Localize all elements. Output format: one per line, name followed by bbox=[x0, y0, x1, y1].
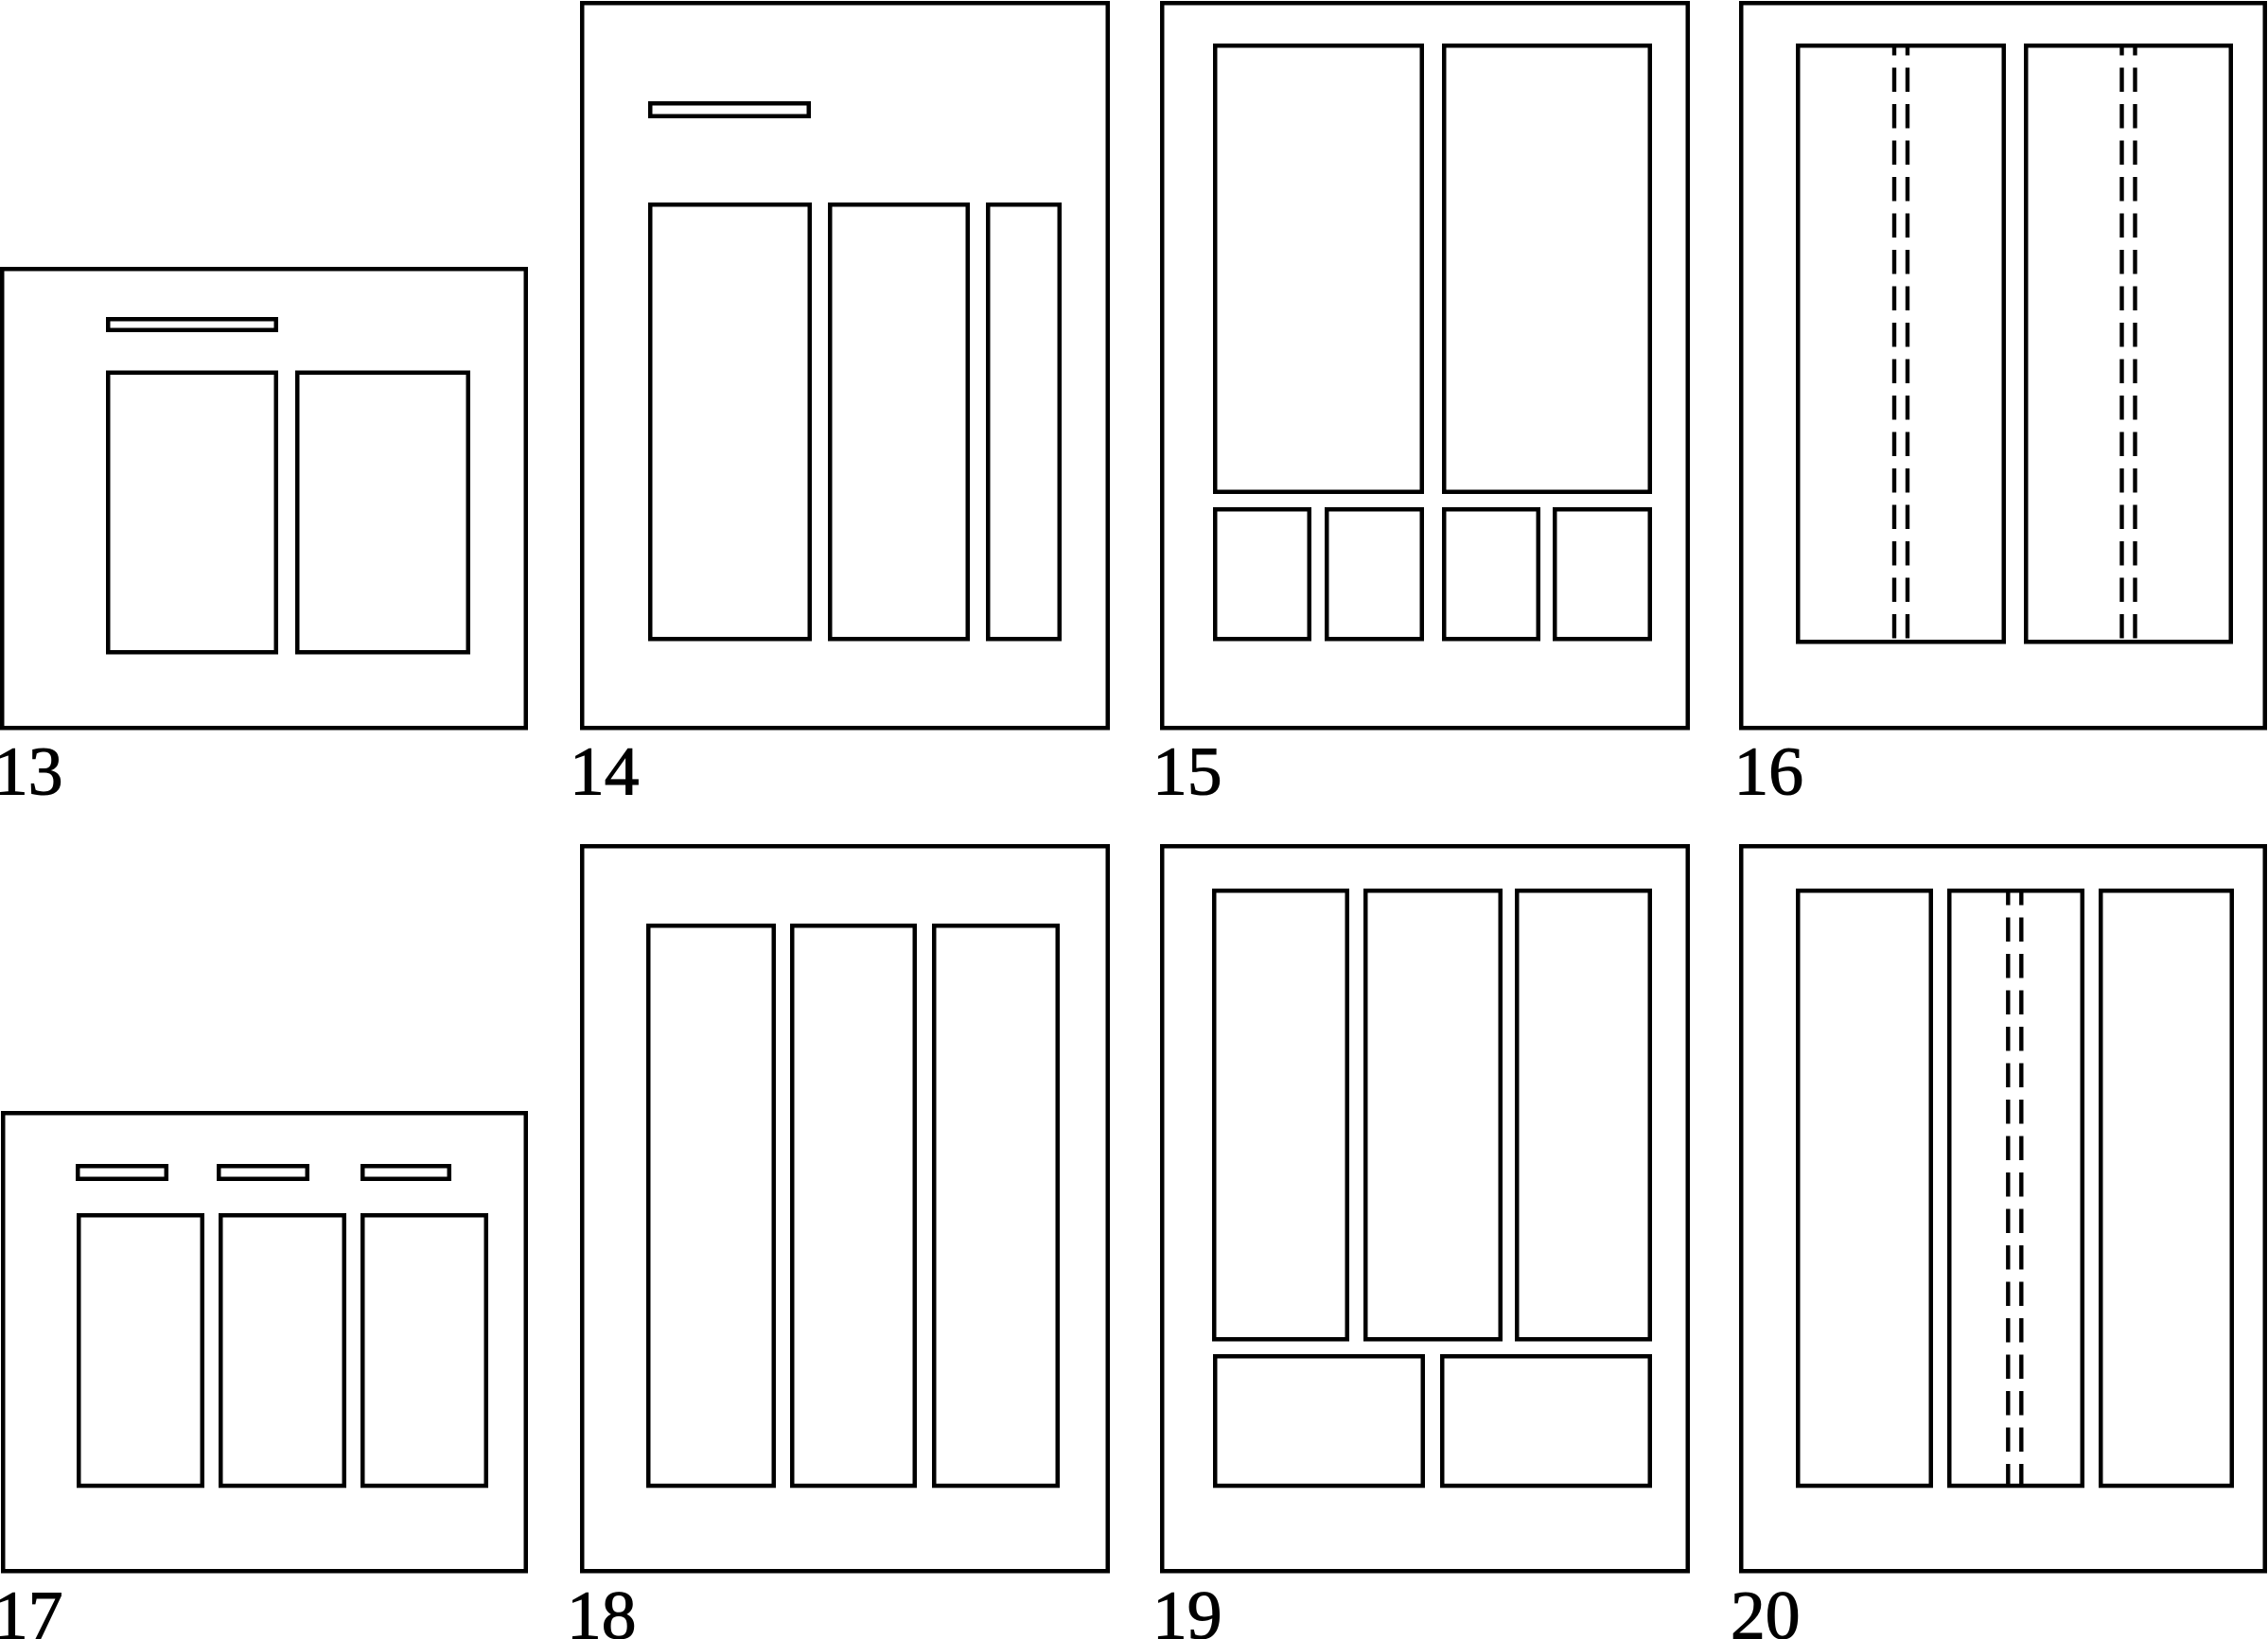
svg-text:17: 17 bbox=[0, 1577, 63, 1639]
svg-text:15: 15 bbox=[1152, 733, 1222, 810]
svg-text:18: 18 bbox=[567, 1577, 637, 1639]
svg-text:16: 16 bbox=[1734, 733, 1804, 810]
svg-text:19: 19 bbox=[1152, 1577, 1222, 1639]
svg-text:14: 14 bbox=[570, 733, 640, 810]
svg-text:13: 13 bbox=[0, 733, 63, 810]
svg-text:20: 20 bbox=[1731, 1577, 1801, 1639]
